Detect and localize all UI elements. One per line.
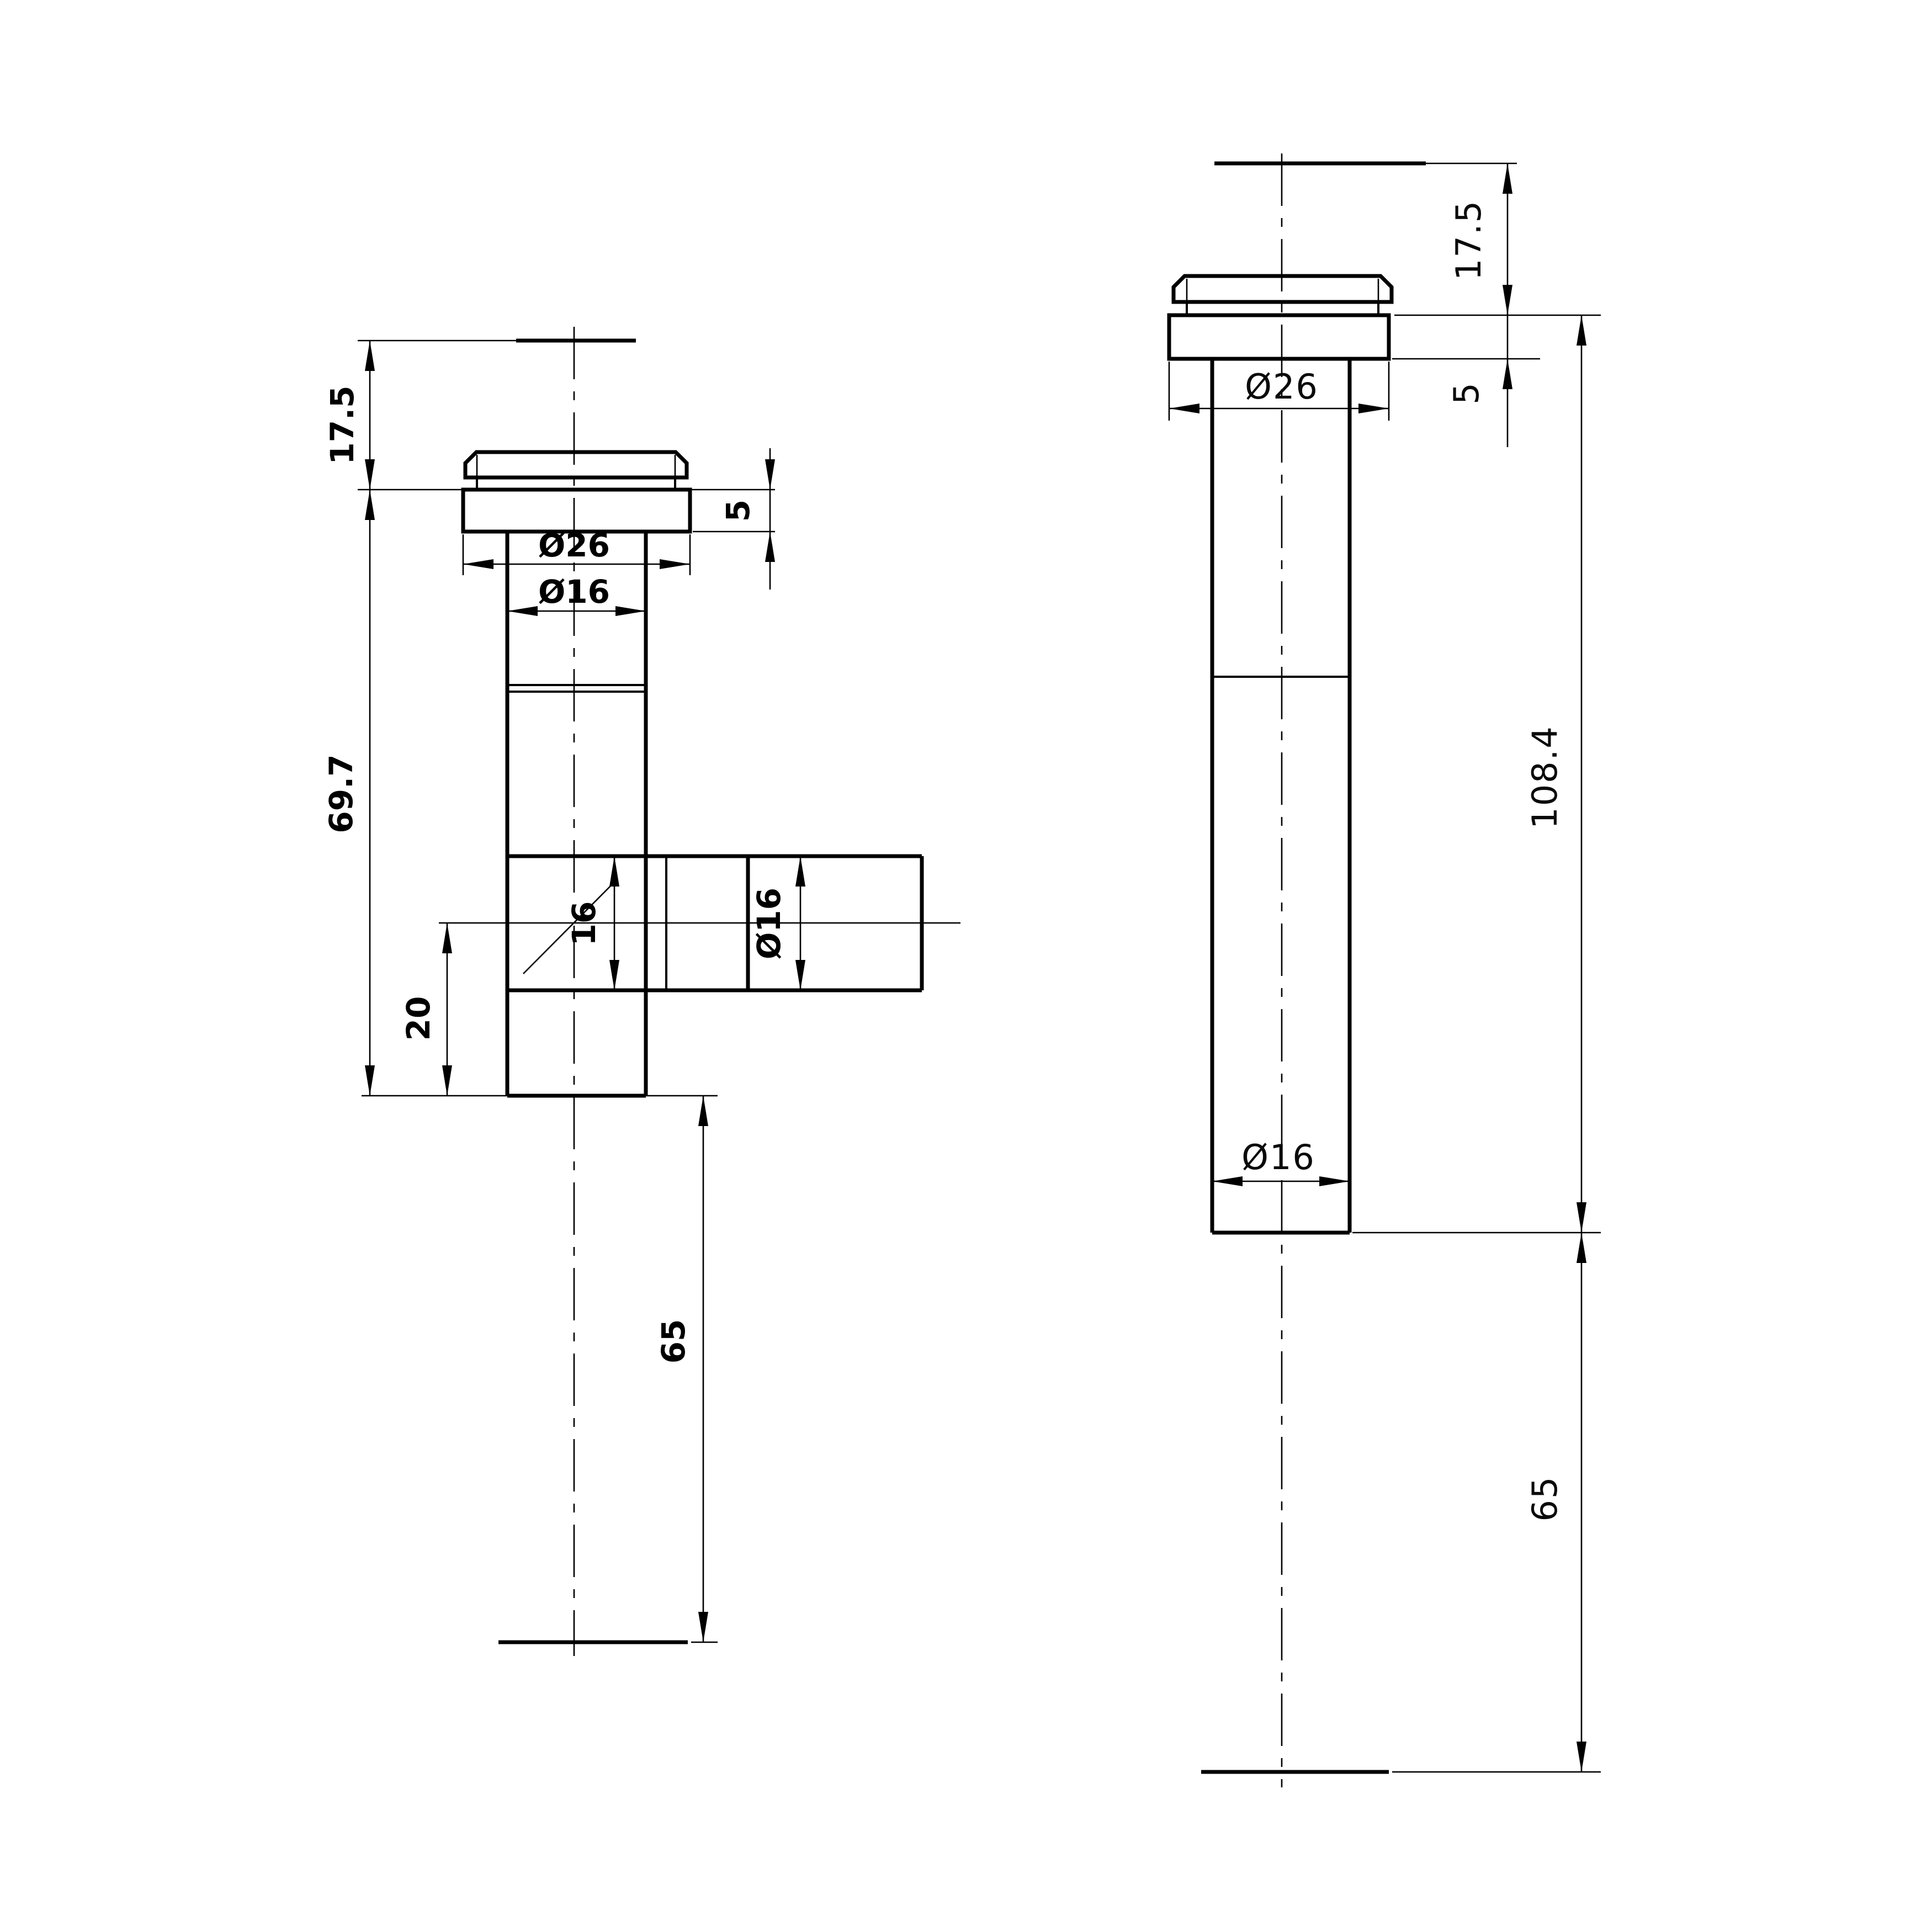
- side-dim-5-label: 5: [1446, 381, 1487, 404]
- side-dim-108-4-label: 108.4: [1525, 725, 1565, 829]
- drawing-sheet: 17.5 69.7 5 Ø26 Ø16: [0, 0, 1932, 1932]
- front-dim-16-label: 16: [565, 901, 603, 946]
- front-dim-d26-label: Ø26: [538, 527, 610, 564]
- front-dim-5-label: 5: [719, 500, 757, 522]
- front-dim-outlet-d16-label: Ø16: [750, 888, 788, 959]
- front-dim-65-label: 65: [655, 1319, 692, 1364]
- side-dim-65-label: 65: [1525, 1476, 1565, 1522]
- side-dim-d16-label: Ø16: [1241, 1137, 1315, 1177]
- side-dim-d26-label: Ø26: [1245, 367, 1319, 407]
- front-dim-69-7-label: 69.7: [322, 754, 360, 833]
- front-dim-17-5-label: 17.5: [323, 385, 361, 464]
- technical-drawing-canvas: 17.5 69.7 5 Ø26 Ø16: [0, 0, 1932, 1932]
- front-dim-20-label: 20: [400, 996, 437, 1041]
- side-dim-17-5-label: 17.5: [1448, 200, 1489, 280]
- sheet-background: [0, 0, 1932, 1932]
- front-dim-d16-label: Ø16: [538, 573, 610, 611]
